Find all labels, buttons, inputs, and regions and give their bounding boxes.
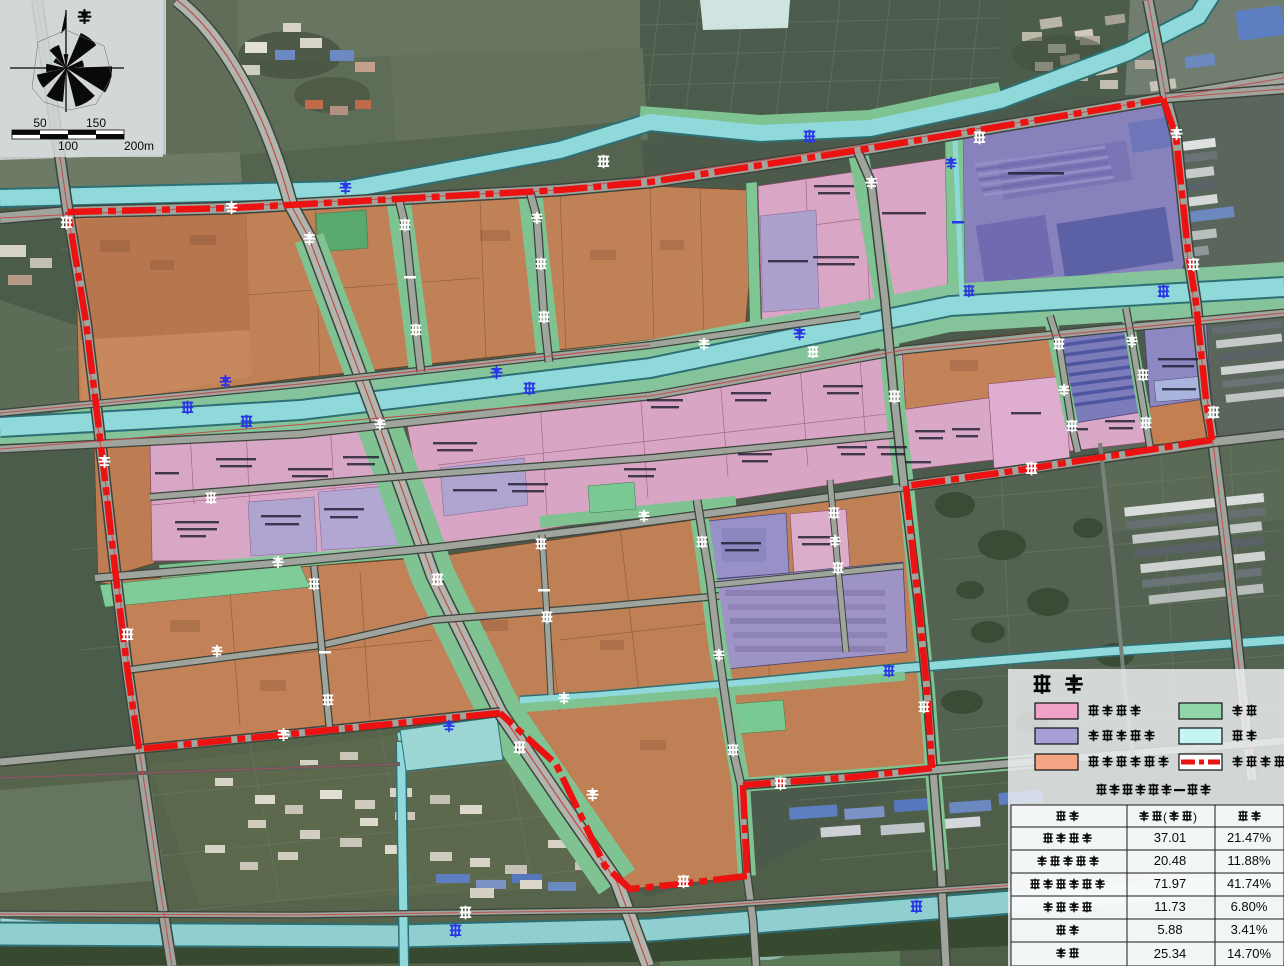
svg-text:6.80%: 6.80% xyxy=(1231,899,1268,914)
svg-text:5.88: 5.88 xyxy=(1157,922,1182,937)
svg-text:200m: 200m xyxy=(124,139,154,153)
svg-text:3.41%: 3.41% xyxy=(1231,922,1268,937)
svg-text:14.70%: 14.70% xyxy=(1227,946,1272,961)
svg-text:71.97: 71.97 xyxy=(1154,876,1187,891)
svg-text:50: 50 xyxy=(33,116,47,130)
svg-text:11.73: 11.73 xyxy=(1154,899,1186,914)
svg-text:): ) xyxy=(1193,810,1197,824)
svg-text:37.01: 37.01 xyxy=(1154,830,1187,845)
svg-text:100: 100 xyxy=(58,139,78,153)
svg-text:11.88%: 11.88% xyxy=(1227,853,1271,868)
svg-text:20.48: 20.48 xyxy=(1154,853,1187,868)
svg-text:41.74%: 41.74% xyxy=(1227,876,1272,891)
svg-text:(: ( xyxy=(1163,810,1167,824)
svg-text:21.47%: 21.47% xyxy=(1227,830,1272,845)
svg-text:25.34: 25.34 xyxy=(1154,946,1187,961)
svg-text:150: 150 xyxy=(86,116,106,130)
